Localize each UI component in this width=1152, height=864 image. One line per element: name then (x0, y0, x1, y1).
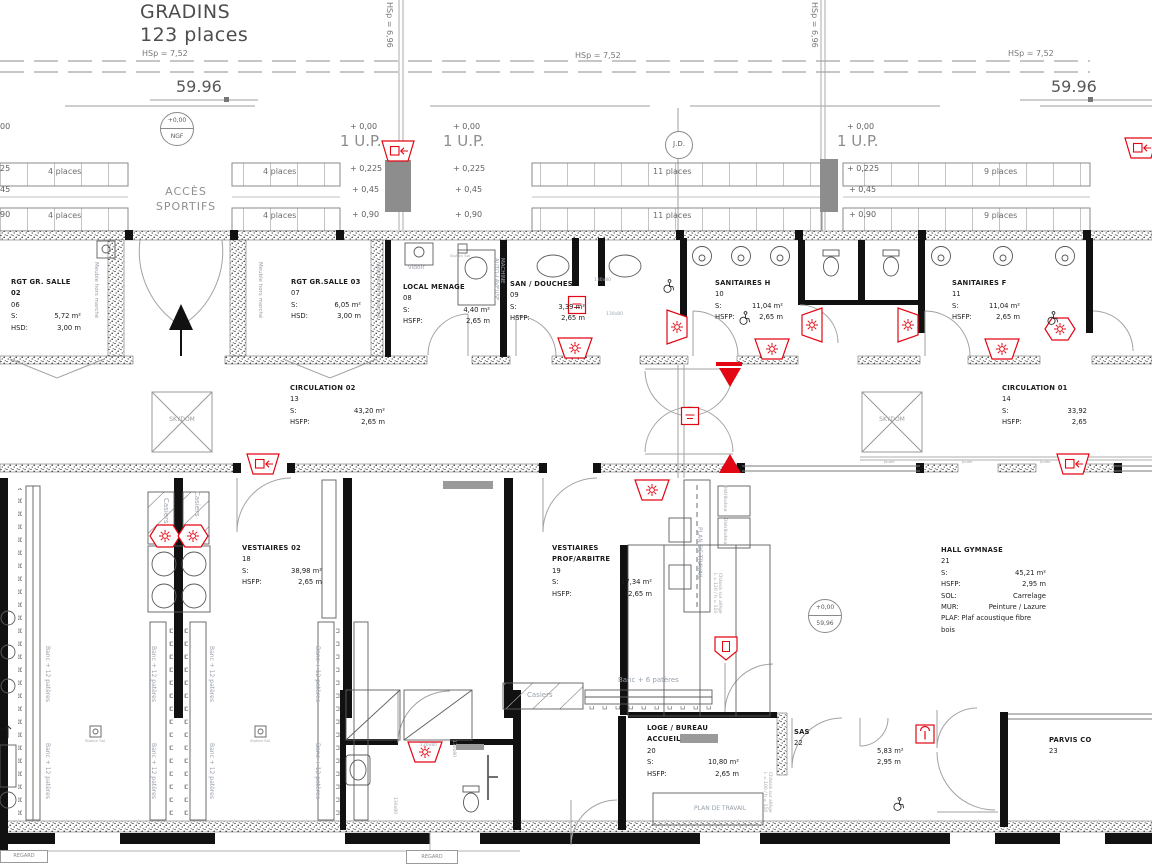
entrance-arrow-icon (169, 304, 193, 356)
siphon-sol-label: Siphon Sol (85, 739, 105, 743)
chassis-label: Châssis sur allège L = 120 / h = 110 (712, 573, 722, 614)
room-label-parvis: PARVIS CO 23 (1049, 735, 1152, 758)
ceiling-light-icon (150, 525, 180, 547)
ngf-datum: NGF (171, 133, 184, 140)
shower-dim-label: 130x80 (450, 740, 455, 757)
emergency-light-icon (635, 480, 669, 500)
level-label: + 0,45 (849, 186, 876, 195)
hsp-roof-label: HSp = 7,52 (575, 52, 621, 61)
edge-level-label: 00 (0, 123, 10, 132)
exit-sign-icon (1125, 138, 1152, 158)
banc-pateres-label: Banc + 12 patères (313, 743, 320, 799)
room-label-sanitaires-f: SANITAIRES F 11 S:11,04 m² HSFP:2,65 m (952, 278, 1020, 324)
evacuation-arrow-icon (719, 368, 741, 387)
room-label-loge-bureau-accueil: LOGE / BUREAU ACCUEIL 20 S:10,80 m² HSFP… (647, 723, 739, 780)
room-values-sas: 5,83 m² 2,95 m (877, 746, 904, 769)
edge-level-label: 90 (0, 211, 10, 220)
shower-dim-label: 130x80 (420, 744, 437, 749)
level-label: + 0,45 (455, 186, 482, 195)
banc-pateres-label: Banc + 12 patères (207, 743, 214, 799)
room-label-circulation-02: CIRCULATION 02 13 S:43,20 m² HSFP:2,65 m (290, 383, 385, 429)
roof-dashed-lines (0, 61, 1090, 72)
seat-count: 11 places (653, 212, 691, 221)
skydom-label: SKYDOM (152, 417, 212, 424)
banc-pateres-label: Banc + 12 patères (149, 646, 156, 702)
seat-count: 4 places (48, 168, 81, 177)
skydome (152, 392, 922, 452)
room-label-sanitaires-h: SANITAIRES H 10 S:11,04 m² HSFP:2,65 m (715, 278, 783, 324)
room-label-local-menage: LOCAL MENAGE 08 S:4,40 m² HSFP:2,65 m (403, 282, 490, 328)
plan-de-travail-label: PLAN DE TRAVAIL (694, 806, 746, 813)
level-label: + 0,90 (455, 211, 482, 220)
distributeur-label: Distributeur (721, 518, 726, 545)
jouee-label: Jouée (884, 460, 895, 464)
casiers-label: Casiers (161, 498, 169, 524)
level-label: + 0,90 (352, 211, 379, 220)
acces-sportifs-label: ACCÈS SPORTIFS (140, 184, 232, 214)
ngf-level-marker: +0,00 NGF (160, 112, 194, 146)
level-elevation: 59,96 (816, 620, 833, 627)
skydom-label: SKYDOM (862, 417, 922, 424)
shower-dim-label: 130x80 (391, 797, 396, 814)
elevation-dots (224, 97, 1093, 102)
room-label-rgt-gr-salle-02: RGT GR. SALLE 02 06 S:5,72 m² HSD:3,00 m (11, 277, 81, 334)
seat-count: 9 places (984, 168, 1017, 177)
jd-label: J.D. (673, 140, 685, 148)
seat-count: 4 places (263, 168, 296, 177)
intercom-icon (916, 725, 934, 743)
wheelchair-icon (894, 798, 904, 811)
emergency-light-icon (558, 338, 592, 358)
ngf-value: +0,00 (161, 113, 193, 129)
gradins-title: GRADINS (140, 1, 248, 24)
room-label-rgt-gr-salle-03: RGT GR.SALLE 03 07 S:6,05 m² HSD:3,00 m (291, 277, 361, 323)
banc-pateres-label: Banc + 12 patères (149, 743, 156, 799)
exit-sign-icon (1057, 454, 1089, 474)
level-label: + 0,225 (847, 165, 879, 174)
floor-plan: GRADINS 123 places HSp = 7,52 HSp = 7,52… (0, 0, 1152, 864)
banc-6-pateres-label: Banc + 6 patères (618, 677, 679, 685)
level-label: + 0,225 (350, 165, 382, 174)
distributeur-label: Distributeur (721, 485, 726, 512)
level-label: + 0,00 (453, 123, 480, 132)
exit-pictogram-icon (715, 637, 737, 660)
siphon-sol-label: Siphon Sol (250, 739, 270, 743)
exit-sign-icon (247, 454, 279, 474)
regard-label: REGARD (406, 850, 458, 864)
up-label: 1 U.P. (443, 133, 485, 150)
level-label: + 0,45 (352, 186, 379, 195)
level-value: +0,00 (809, 600, 841, 616)
room-label-san-douches: SAN / DOUCHES 09 S:3,39 m² HSFP:2,65 m (510, 279, 585, 325)
plan-de-travail-label: PLAN DE TRAVAIL (695, 527, 702, 579)
hsp-column-label: HSp = 6,96 (384, 2, 393, 48)
banc-pateres-label: Banc + 12 patères (207, 646, 214, 702)
siphon-sol-label: Siphon Sol (450, 254, 470, 258)
level-label: + 0,225 (453, 165, 485, 174)
level-label: + 0,90 (849, 211, 876, 220)
shower-dim-label: 130x80 (594, 279, 611, 284)
banc-pateres-label: Banc + 12 patères (313, 646, 320, 702)
hsp-roof-label: HSp = 7,52 (1008, 50, 1054, 59)
ceiling-light-icon (1045, 318, 1075, 340)
jouee-label: Jouée (1040, 460, 1051, 464)
vidoir-label: vidoir (408, 265, 425, 272)
acces-line1: ACCÈS (140, 184, 232, 199)
level-label: + 0,00 (847, 123, 874, 132)
up-label: 1 U.P. (837, 133, 879, 150)
room-label-sas: SAS 22 (794, 727, 810, 750)
room-label-hall-gymnase: HALL GYMNASE 21 S:45,21 m² HSFP:2,95 m S… (941, 545, 1046, 636)
seat-count: 9 places (984, 212, 1017, 221)
room-label-vestiaires-02: VESTIAIRES 02 18 S:38,98 m² HSFP:2,65 m (242, 543, 322, 589)
banc-pateres-label: Banc + 12 patères (43, 743, 50, 799)
machine-auto-laveuse-label: MACHINE AUTO-LAVEUSE (493, 258, 505, 300)
exit-sign-icon (382, 141, 414, 161)
floor-level-marker: +0,00 59,96 (808, 599, 842, 633)
seat-count: 11 places (653, 168, 691, 177)
meuble-hors-marche-label: Meuble hors marché (257, 262, 263, 318)
drawing-title: GRADINS 123 places (140, 1, 248, 47)
hsp-column-label: HSp = 6,96 (809, 2, 818, 48)
shower-dim-label: 130x80 (606, 313, 623, 318)
seat-count: 4 places (263, 212, 296, 221)
emergency-light-icon (898, 308, 918, 342)
jouee-label: Jouée (962, 460, 973, 464)
hsp-roof-label: HSp = 7,52 (142, 50, 188, 59)
regard-label: REGARD (0, 850, 48, 863)
casiers-label: Casiers (192, 491, 200, 517)
chassis-label: Châssis sur allège L = 100 / h = 110 (762, 772, 772, 813)
room-label-circulation-01: CIRCULATION 01 14 S:33,92 HSFP:2,65 (1002, 383, 1087, 429)
acces-line2: SPORTIFS (140, 199, 232, 214)
elevation-label: 59.96 (1051, 78, 1097, 96)
banc-pateres-label: Banc + 12 patères (43, 646, 50, 702)
seat-count: 4 places (48, 212, 81, 221)
edge-level-label: 45 (0, 186, 10, 195)
casiers-label: Casiers (527, 692, 553, 700)
joint-dilatation-marker: J.D. (665, 131, 693, 159)
up-label: 1 U.P. (340, 133, 382, 150)
emergency-light-icon (802, 308, 822, 342)
meuble-hors-marche-label: Meuble hors marché (93, 262, 99, 318)
gradins-capacity: 123 places (140, 24, 248, 47)
room-label-vestiaires-prof-arbitre: VESTIAIRES PROF/ARBITRE 19 S:17,34 m² HS… (552, 543, 652, 600)
ceiling-light-icon (178, 525, 208, 547)
wheelchair-icon (664, 280, 674, 293)
alarm-device-icon (682, 408, 699, 425)
edge-level-label: 25 (0, 165, 10, 174)
level-label: + 0,00 (350, 123, 377, 132)
elevation-label: 59.96 (176, 78, 222, 96)
meuble-hors-marche-label: Meuble hors marché (375, 262, 381, 318)
